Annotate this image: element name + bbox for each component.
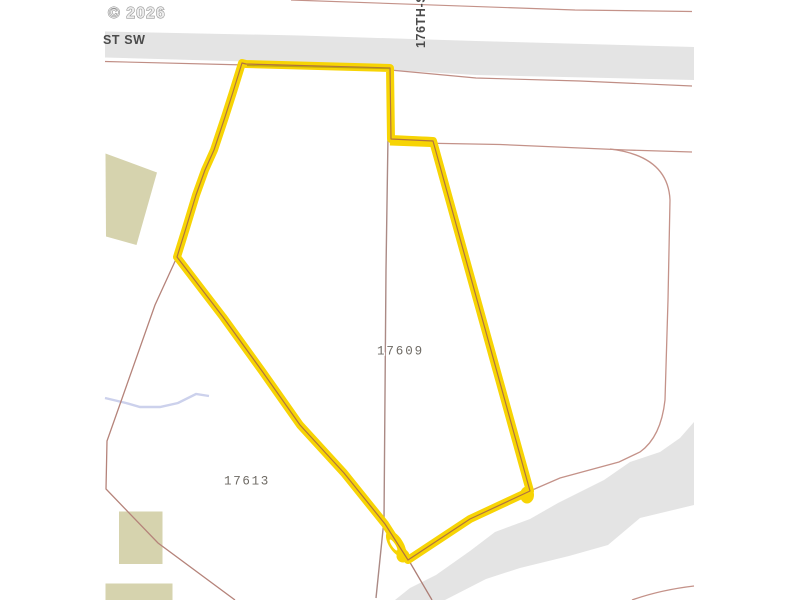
svg-text:17609: 17609 [377,345,424,359]
svg-text:176TH-ST: 176TH-ST [414,0,428,48]
svg-text:17613: 17613 [224,475,270,489]
svg-text:© 2026: © 2026 [108,5,166,22]
svg-text:ST SW: ST SW [103,33,146,47]
